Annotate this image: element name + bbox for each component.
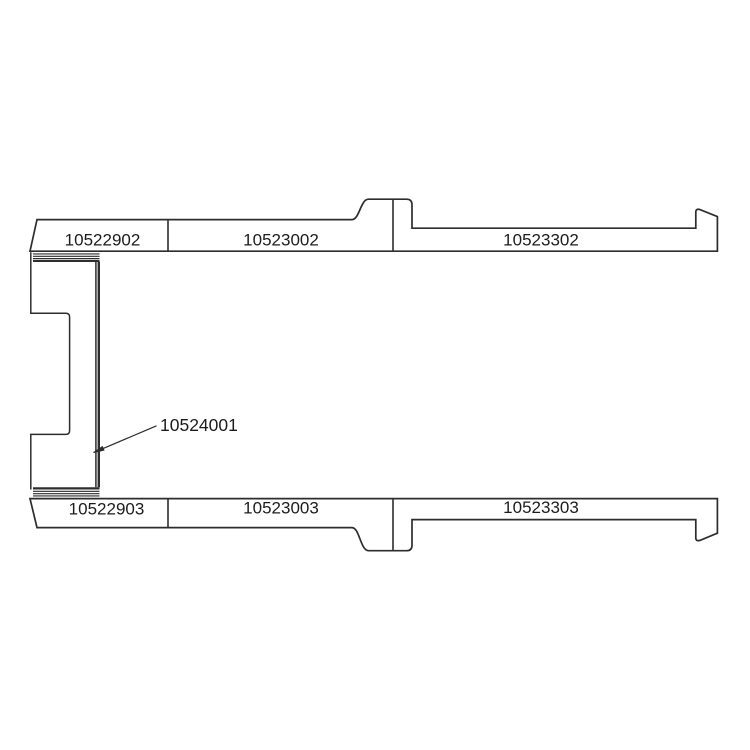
left-bracket-outline — [31, 252, 70, 489]
parts-diagram: 10522902 10523002 10523302 10522903 1052… — [0, 0, 750, 750]
part-label-top-middle: 10523002 — [243, 231, 319, 250]
hatch-lines-bottom — [33, 488, 100, 496]
diagram-lines — [30, 199, 717, 551]
diagram-labels: 10522902 10523002 10523302 10522903 1052… — [65, 231, 579, 519]
part-label-bottom-right: 10523303 — [503, 498, 579, 517]
part-label-bottom-middle: 10523003 — [243, 499, 319, 518]
part-label-bottom-left: 10522903 — [69, 500, 145, 519]
hatch-lines-top — [33, 254, 100, 261]
part-label-top-left: 10522902 — [65, 231, 141, 250]
part-label-callout: 10524001 — [160, 415, 238, 435]
callout-leader-line — [103, 426, 157, 449]
part-label-top-right: 10523302 — [503, 231, 579, 250]
drawing-canvas: 10522902 10523002 10523302 10522903 1052… — [0, 0, 750, 750]
